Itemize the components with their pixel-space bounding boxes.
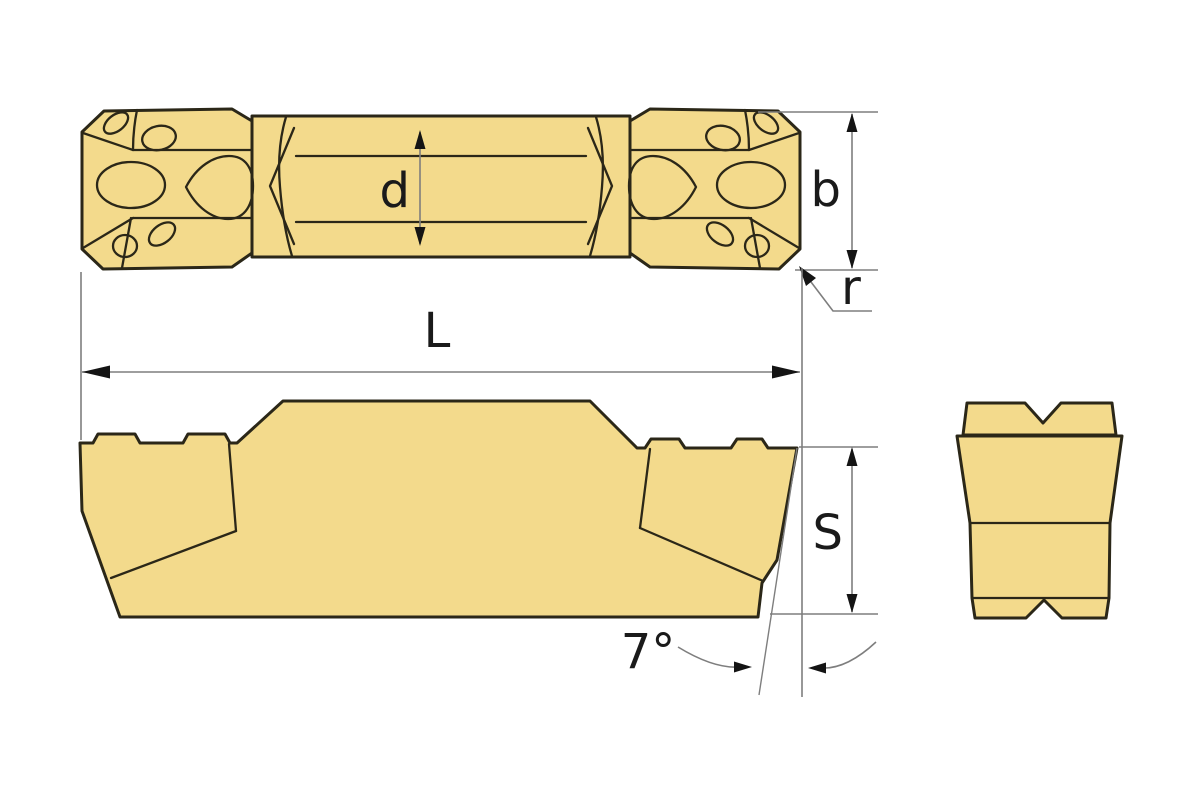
- thickness-label: S: [813, 505, 843, 561]
- side-view: [957, 403, 1122, 618]
- arrowhead-right-icon: [734, 662, 752, 673]
- arrowhead-up-icon: [847, 447, 858, 466]
- drawing-canvas: d b r L: [0, 0, 1200, 800]
- arrowhead-down-icon: [847, 594, 858, 613]
- angle-label: 7°: [621, 624, 676, 680]
- top-view-shank: [252, 116, 630, 257]
- angle-arc-left: [678, 647, 740, 667]
- grooving-insert-technical-drawing: d b r L: [0, 0, 1200, 800]
- arrowhead-up-icon: [847, 113, 858, 132]
- arrowhead-left-icon: [82, 366, 110, 379]
- dimension-r: r: [799, 260, 872, 316]
- top-view-left-head: [82, 108, 253, 269]
- r-label: r: [841, 260, 861, 316]
- b-label: b: [811, 162, 841, 218]
- front-view: [80, 401, 797, 617]
- arrowhead-right-icon: [772, 366, 800, 379]
- d-label: d: [380, 163, 410, 219]
- arrowhead-left-icon: [808, 663, 826, 674]
- side-view-body: [957, 436, 1122, 618]
- top-view: d b r: [82, 108, 878, 316]
- angle-arc-right: [820, 642, 876, 668]
- length-label: L: [424, 303, 451, 359]
- r-leader-line: [808, 278, 872, 311]
- side-view-top-rail: [963, 403, 1116, 435]
- front-view-outline: [80, 401, 797, 617]
- top-view-right-head: [629, 108, 800, 269]
